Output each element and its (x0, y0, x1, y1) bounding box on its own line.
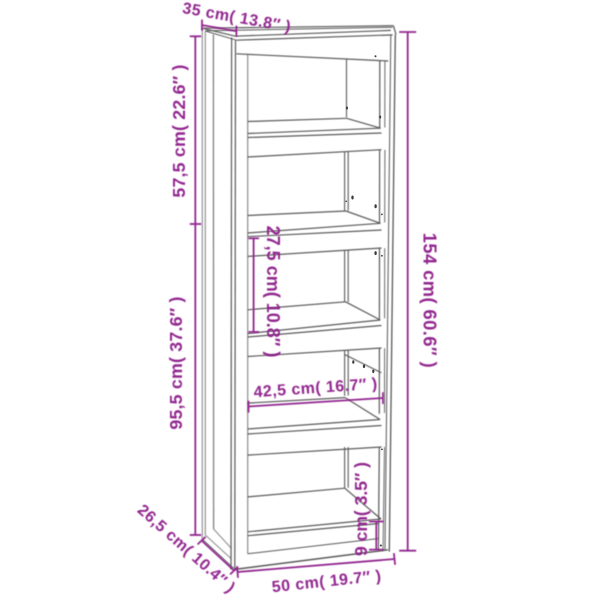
svg-text:57,5 cm( 22.6″ ): 57,5 cm( 22.6″ ) (169, 64, 189, 197)
svg-text:27,5 cm( 10.8″ ): 27,5 cm( 10.8″ ) (263, 226, 283, 358)
svg-text:95,5 cm( 37.6″ ): 95,5 cm( 37.6″ ) (166, 296, 186, 429)
svg-text:154 cm( 60.6″ ): 154 cm( 60.6″ ) (420, 233, 441, 368)
svg-text:9 cm( 3.5″ ): 9 cm( 3.5″ ) (351, 462, 371, 556)
